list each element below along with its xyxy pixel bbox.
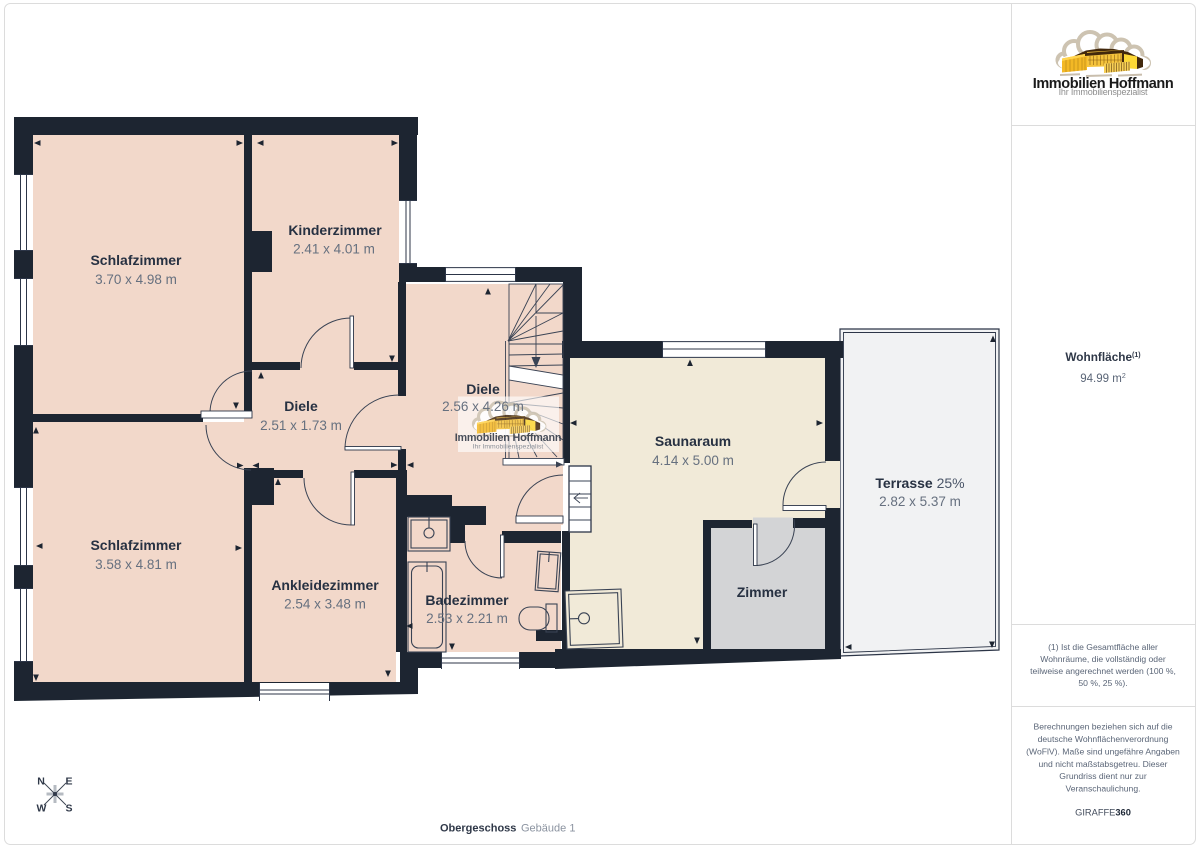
svg-text:2.41 x 4.01 m: 2.41 x 4.01 m [293, 242, 375, 257]
svg-text:Berechnungen beziehen sich auf: Berechnungen beziehen sich auf die [1033, 722, 1172, 732]
svg-text:N: N [37, 776, 45, 788]
svg-text:Ihr Immobilienspezialist: Ihr Immobilienspezialist [1059, 87, 1148, 97]
svg-text:Kinderzimmer: Kinderzimmer [288, 222, 382, 238]
svg-text:und nicht maßstabsgetreu. Dies: und nicht maßstabsgetreu. Dieser [1039, 759, 1168, 769]
svg-text:Zimmer: Zimmer [737, 584, 788, 600]
svg-text:deutsche Wohnflächenverordnung: deutsche Wohnflächenverordnung [1038, 734, 1169, 744]
svg-text:S: S [65, 803, 72, 815]
svg-text:Grundriss dient nur zur: Grundriss dient nur zur [1059, 771, 1147, 781]
svg-text:Diele: Diele [284, 398, 318, 414]
svg-text:4.14 x 5.00 m: 4.14 x 5.00 m [652, 453, 734, 468]
svg-text:Schlafzimmer: Schlafzimmer [90, 252, 182, 268]
svg-text:Wohnräume, die vollständig ode: Wohnräume, die vollständig oder [1040, 654, 1166, 664]
svg-text:Terrasse 25%: Terrasse 25% [875, 475, 964, 491]
svg-text:Ihr Immobilienspezialist: Ihr Immobilienspezialist [473, 444, 544, 451]
svg-text:Immobilien Hoffmann: Immobilien Hoffmann [455, 432, 562, 444]
svg-text:3.70 x 4.98 m: 3.70 x 4.98 m [95, 272, 177, 287]
svg-text:Veranschaulichung.: Veranschaulichung. [1065, 784, 1140, 794]
svg-text:Obergeschoss: Obergeschoss [440, 823, 516, 835]
svg-text:Schlafzimmer: Schlafzimmer [90, 537, 182, 553]
svg-text:Diele: Diele [466, 381, 500, 397]
svg-text:Ankleidezimmer: Ankleidezimmer [271, 577, 379, 593]
svg-text:W: W [37, 803, 47, 815]
svg-text:Gebäude 1: Gebäude 1 [521, 823, 575, 835]
svg-text:Badezimmer: Badezimmer [425, 592, 509, 608]
svg-text:50 %, 25 %).: 50 %, 25 %). [1078, 678, 1127, 688]
svg-text:(1) Ist die Gesamtfläche aller: (1) Ist die Gesamtfläche aller [1048, 642, 1158, 652]
svg-text:2.51 x 1.73 m: 2.51 x 1.73 m [260, 418, 342, 433]
svg-text:3.58 x 4.81 m: 3.58 x 4.81 m [95, 557, 177, 572]
svg-text:94.99 m2: 94.99 m2 [1080, 373, 1126, 385]
svg-text:2.56 x 4.26 m: 2.56 x 4.26 m [442, 399, 524, 414]
svg-text:2.53 x 2.21 m: 2.53 x 2.21 m [426, 611, 508, 626]
svg-text:Saunaraum: Saunaraum [655, 433, 731, 449]
svg-text:2.54 x 3.48 m: 2.54 x 3.48 m [284, 597, 366, 612]
svg-text:GIRAFFE360: GIRAFFE360 [1075, 808, 1131, 818]
svg-text:teilweise angerechnet werden (: teilweise angerechnet werden (100 %, [1030, 666, 1176, 676]
svg-text:2.82 x 5.37 m: 2.82 x 5.37 m [879, 494, 961, 509]
svg-text:(WoFlV). Maße sind ungefähre A: (WoFlV). Maße sind ungefähre Angaben [1026, 746, 1180, 756]
svg-text:E: E [65, 776, 72, 788]
svg-text:Wohnfläche(1): Wohnfläche(1) [1065, 350, 1140, 364]
